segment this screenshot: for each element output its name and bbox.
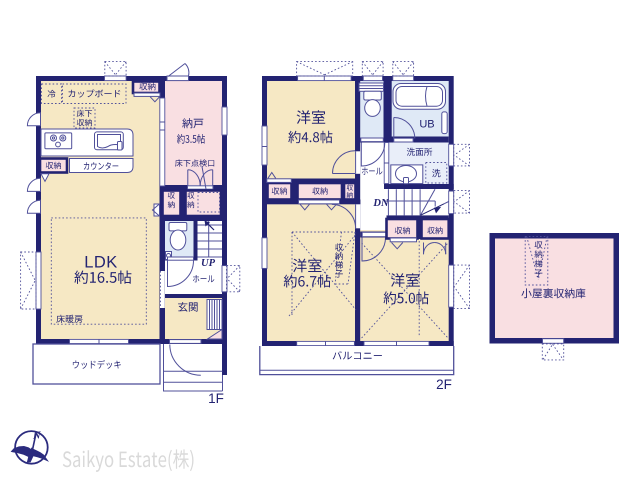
svg-text:UP: UP bbox=[201, 258, 216, 269]
svg-text:DN: DN bbox=[372, 198, 389, 209]
svg-text:1F: 1F bbox=[208, 391, 224, 406]
svg-text:LDK: LDK bbox=[84, 254, 118, 272]
svg-text:UB: UB bbox=[419, 119, 434, 131]
svg-text:N: N bbox=[32, 430, 41, 441]
svg-text:2F: 2F bbox=[436, 377, 452, 392]
